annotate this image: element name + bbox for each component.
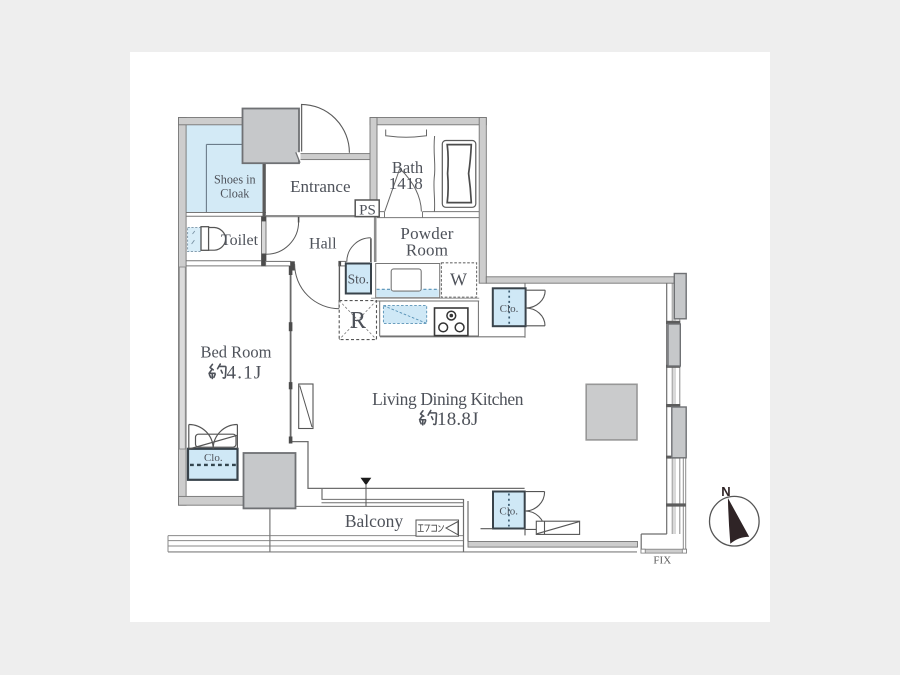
svg-text:Living Dining Kitchen: Living Dining Kitchen — [372, 389, 524, 409]
svg-text:Bed Room: Bed Room — [200, 342, 271, 361]
svg-text:Room: Room — [406, 241, 448, 260]
svg-text:W: W — [450, 269, 467, 289]
svg-text:18.8J: 18.8J — [437, 409, 479, 430]
svg-text:R: R — [350, 308, 366, 334]
svg-text:Hall: Hall — [309, 236, 337, 253]
svg-text:Toilet: Toilet — [221, 232, 259, 249]
svg-text:Clo.: Clo. — [204, 452, 223, 464]
svg-text:Shoes in: Shoes in — [214, 173, 256, 187]
svg-text:FIX: FIX — [653, 555, 671, 567]
svg-text:Cloak: Cloak — [220, 187, 250, 201]
svg-text:Clo.: Clo. — [499, 506, 518, 518]
svg-text:Sto.: Sto. — [348, 272, 369, 287]
svg-text:1418: 1418 — [389, 174, 423, 193]
svg-text:Clo.: Clo. — [500, 303, 519, 315]
svg-text:PS: PS — [359, 202, 376, 218]
svg-text:Balcony: Balcony — [345, 511, 404, 531]
svg-text:N: N — [721, 484, 730, 499]
svg-text:Entrance: Entrance — [290, 177, 350, 196]
svg-text:4.1J: 4.1J — [227, 363, 263, 384]
